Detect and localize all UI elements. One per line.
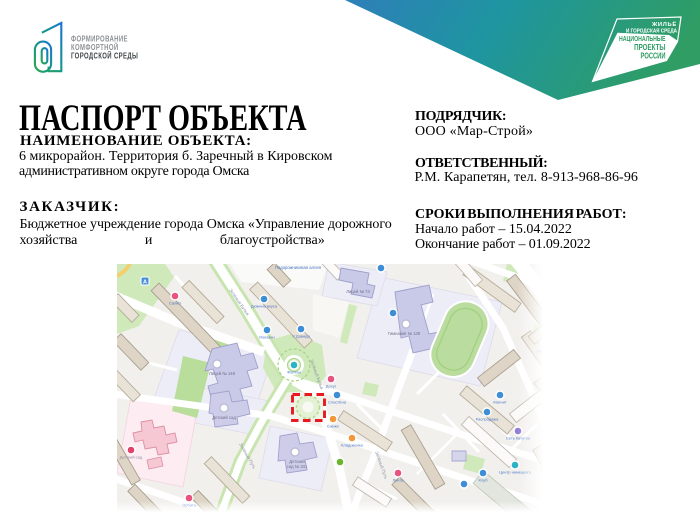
svg-text:Досуг: Досуг	[326, 384, 337, 389]
svg-text:Лицей № 74: Лицей № 74	[346, 289, 370, 294]
svg-text:Сластёна: Сластёна	[328, 400, 347, 405]
svg-text:Детский сад: Детский сад	[120, 455, 143, 460]
svg-text:Гимназия № 139: Гимназия № 139	[388, 331, 421, 336]
svg-text:У Давида: У Давида	[292, 334, 310, 339]
svg-text:Лента: Лента	[392, 478, 404, 483]
svg-text:Магазин: Магазин	[259, 335, 274, 340]
svg-text:Детский сад: Детский сад	[212, 415, 236, 420]
svg-text:A: A	[143, 280, 147, 286]
svg-text:Подорожниковая аллея: Подорожниковая аллея	[275, 265, 321, 270]
svg-text:Лицей № 148: Лицей № 148	[209, 371, 236, 376]
svg-text:Дюжина вкуса: Дюжина вкуса	[251, 304, 278, 309]
svg-text:Салют: Салют	[169, 301, 181, 306]
svg-text:Клуб: Клуб	[479, 478, 489, 483]
svg-text:сад № 341: сад № 341	[287, 464, 308, 469]
svg-text:Распродажа: Распродажа	[476, 417, 500, 422]
svg-text:НАЦИОНАЛЬНЫЕ: НАЦИОНАЛЬНЫЕ	[619, 35, 666, 43]
svg-text:Ёжики: Ёжики	[327, 424, 339, 429]
svg-text:РОССИИ: РОССИИ	[641, 53, 666, 61]
svg-text:ЖИЛЬЁ: ЖИЛЬЁ	[651, 21, 677, 28]
svg-text:Магнит: Магнит	[493, 400, 507, 405]
svg-text:ПРОЕКТЫ: ПРОЕКТЫ	[634, 43, 665, 52]
svg-text:Кладовочка: Кладовочка	[341, 443, 364, 448]
svg-text:Фонтан: Фонтан	[287, 370, 301, 375]
